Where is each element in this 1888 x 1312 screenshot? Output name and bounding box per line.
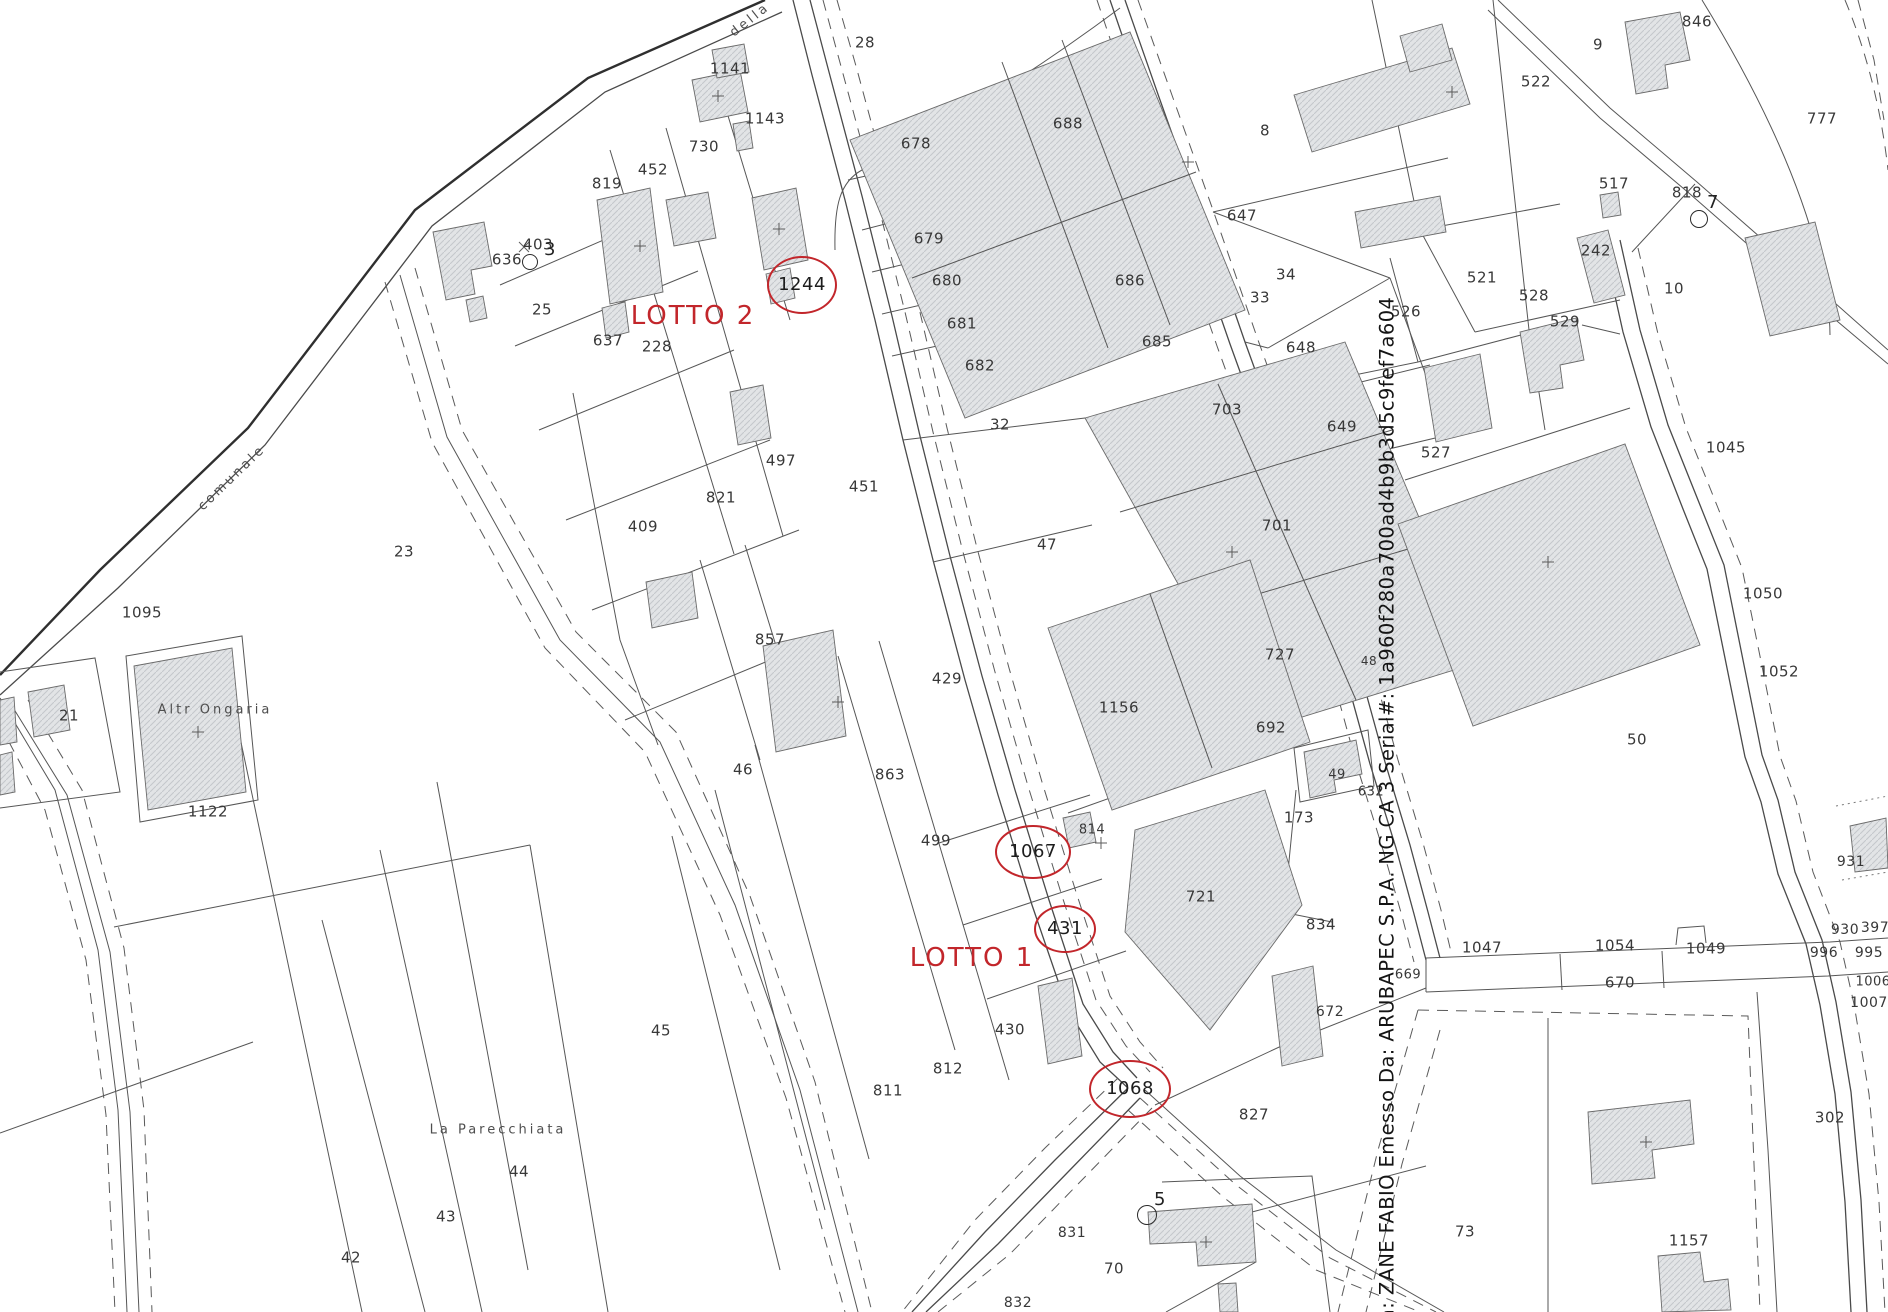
parcel-label-672: 672 <box>1316 1005 1344 1019</box>
parcel-label-8: 8 <box>1260 124 1270 139</box>
parcel-label-811: 811 <box>873 1084 903 1099</box>
parcel-label-517: 517 <box>1599 177 1629 192</box>
parcel-label-3: 3 <box>544 241 556 259</box>
parcel-label-7: 7 <box>1707 194 1719 212</box>
parcel-label-1122: 1122 <box>188 805 228 820</box>
parcel-label-34: 34 <box>1276 268 1296 283</box>
toponym-comunale: comunale <box>196 443 268 513</box>
point-marker-5 <box>1137 1205 1157 1225</box>
parcel-label-701: 701 <box>1262 519 1292 534</box>
lot-label-lotto-2: LOTTO 2 <box>631 303 756 329</box>
parcel-label-777: 777 <box>1807 112 1837 127</box>
parcel-label-1157: 1157 <box>1669 1234 1709 1249</box>
parcel-label-931: 931 <box>1837 855 1865 869</box>
circled-parcel-1068: 1068 <box>1089 1060 1171 1118</box>
parcel-label-1095: 1095 <box>122 606 162 621</box>
parcel-label-637: 637 <box>593 334 623 349</box>
cadastral-map: 2811411143730452819678688984652277764767… <box>0 0 1888 1312</box>
parcel-label-429: 429 <box>932 672 962 687</box>
parcel-label-1141: 1141 <box>710 62 750 77</box>
parcel-label-302: 302 <box>1815 1111 1845 1126</box>
parcel-label-827: 827 <box>1239 1108 1269 1123</box>
parcel-label-1007: 1007 <box>1850 996 1888 1010</box>
parcel-label-499: 499 <box>921 834 951 849</box>
parcel-label-521: 521 <box>1467 271 1497 286</box>
parcel-label-680: 680 <box>932 274 962 289</box>
parcel-label-228: 228 <box>642 340 672 355</box>
parcel-label-692: 692 <box>1256 721 1286 736</box>
parcel-label-45: 45 <box>651 1024 671 1039</box>
parcel-label-647: 647 <box>1227 209 1257 224</box>
parcel-label-688: 688 <box>1053 117 1083 132</box>
parcel-label-1143: 1143 <box>745 112 785 127</box>
parcel-label-685: 685 <box>1142 335 1172 350</box>
parcel-label-43: 43 <box>436 1210 456 1225</box>
parcel-label-857: 857 <box>755 633 785 648</box>
parcel-label-522: 522 <box>1521 75 1551 90</box>
parcel-label-497: 497 <box>766 454 796 469</box>
parcel-label-70: 70 <box>1104 1262 1124 1277</box>
parcel-label-814: 814 <box>1079 824 1105 837</box>
parcel-label-832: 832 <box>1004 1296 1032 1310</box>
parcel-label-452: 452 <box>638 163 668 178</box>
parcel-label-636: 636 <box>492 253 522 268</box>
parcel-label-5: 5 <box>1154 1191 1166 1209</box>
parcel-label-1156: 1156 <box>1099 701 1139 716</box>
parcel-label-25: 25 <box>532 303 552 318</box>
parcel-label-821: 821 <box>706 491 736 506</box>
circled-parcel-431: 431 <box>1034 905 1096 953</box>
parcel-label-930: 930 <box>1831 923 1859 937</box>
parcel-label-529: 529 <box>1550 315 1580 330</box>
lot-label-lotto-1: LOTTO 1 <box>910 945 1035 971</box>
digital-signature-text: Firmato Da: ZANE FABIO Emesso Da: ARUBAP… <box>1376 297 1399 1312</box>
parcel-label-44: 44 <box>509 1165 529 1180</box>
parcel-label-863: 863 <box>875 768 905 783</box>
parcel-label-42: 42 <box>341 1251 361 1266</box>
parcel-label-670: 670 <box>1605 976 1635 991</box>
parcel-label-682: 682 <box>965 359 995 374</box>
parcel-label-1045: 1045 <box>1706 441 1746 456</box>
parcel-label-50: 50 <box>1627 733 1647 748</box>
parcel-label-173: 173 <box>1284 811 1314 826</box>
parcel-label-669: 669 <box>1395 969 1421 982</box>
parcel-label-678: 678 <box>901 137 931 152</box>
parcel-label-730: 730 <box>689 140 719 155</box>
parcel-label-47: 47 <box>1037 538 1057 553</box>
parcel-label-834: 834 <box>1306 918 1336 933</box>
circled-parcel-1244: 1244 <box>767 256 837 314</box>
parcel-label-1006: 1006 <box>1855 976 1888 989</box>
toponym-altr-ongaria: Altr Ongaria <box>158 704 273 717</box>
parcel-label-686: 686 <box>1115 274 1145 289</box>
parcel-label-681: 681 <box>947 317 977 332</box>
parcel-label-32: 32 <box>990 418 1010 433</box>
parcel-label-28: 28 <box>855 36 875 51</box>
parcel-label-1054: 1054 <box>1595 939 1635 954</box>
toponym-della: della <box>728 1 773 40</box>
parcel-label-409: 409 <box>628 520 658 535</box>
parcel-label-527: 527 <box>1421 446 1451 461</box>
parcel-label-649: 649 <box>1327 420 1357 435</box>
parcel-label-846: 846 <box>1682 15 1712 30</box>
parcel-label-451: 451 <box>849 480 879 495</box>
circled-parcel-1067: 1067 <box>995 825 1071 879</box>
parcel-label-831: 831 <box>1058 1226 1086 1240</box>
parcel-label-721: 721 <box>1186 890 1216 905</box>
parcel-label-819: 819 <box>592 177 622 192</box>
parcel-label-679: 679 <box>914 232 944 247</box>
parcel-label-818: 818 <box>1672 186 1702 201</box>
parcel-label-23: 23 <box>394 545 414 560</box>
parcel-label-46: 46 <box>733 763 753 778</box>
point-marker-3 <box>522 254 538 270</box>
parcel-label-648: 648 <box>1286 341 1316 356</box>
point-marker-7 <box>1690 210 1708 228</box>
parcel-label-73: 73 <box>1455 1225 1475 1240</box>
parcel-label-812: 812 <box>933 1062 963 1077</box>
parcel-label-1047: 1047 <box>1462 941 1502 956</box>
parcel-label-49: 49 <box>1328 769 1346 782</box>
parcel-label-397: 397 <box>1861 921 1888 935</box>
parcel-label-430: 430 <box>995 1023 1025 1038</box>
parcel-label-1049: 1049 <box>1686 942 1726 957</box>
parcel-label-1052: 1052 <box>1759 665 1799 680</box>
parcel-label-995: 995 <box>1855 946 1883 960</box>
parcel-label-1050: 1050 <box>1743 587 1783 602</box>
parcel-label-703: 703 <box>1212 403 1242 418</box>
parcel-label-996: 996 <box>1810 946 1838 960</box>
parcel-label-528: 528 <box>1519 289 1549 304</box>
parcel-label-10: 10 <box>1664 282 1684 297</box>
toponym-la-parecchiata: La Parecchiata <box>430 1124 567 1137</box>
parcel-label-727: 727 <box>1265 648 1295 663</box>
parcel-label-21: 21 <box>59 709 79 724</box>
parcel-label-9: 9 <box>1593 38 1603 53</box>
map-labels: 2811411143730452819678688984652277764767… <box>0 0 1888 1312</box>
parcel-label-242: 242 <box>1581 244 1611 259</box>
parcel-label-33: 33 <box>1250 291 1270 306</box>
